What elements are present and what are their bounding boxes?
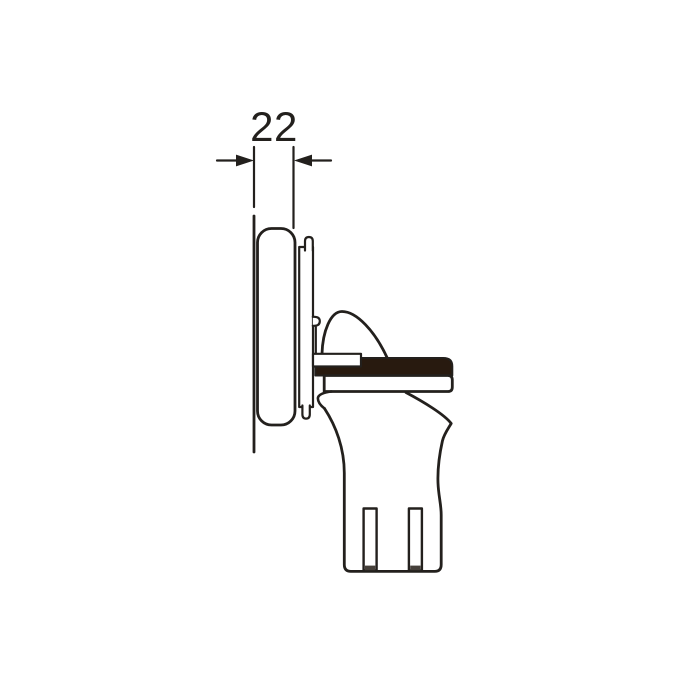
diagram-canvas: 22	[0, 0, 700, 700]
backplate-bottom-tab	[302, 406, 309, 419]
holder-hook-curl	[318, 392, 332, 409]
slot-right	[409, 509, 422, 571]
latch-bump	[313, 317, 320, 326]
dimension-arrowhead-right	[294, 155, 312, 167]
slot-right-shadow	[410, 566, 420, 571]
mount-plate-profile	[258, 229, 296, 426]
dimension-arrowhead-left	[236, 155, 254, 167]
holder-arm-lower-bar	[324, 376, 452, 392]
holder-dome	[322, 312, 388, 359]
technical-diagram: 22	[0, 0, 700, 700]
slot-left-shadow	[365, 566, 375, 571]
backplate-profile	[299, 247, 313, 407]
diagram-artwork: 22	[217, 103, 452, 571]
slot-left	[364, 509, 377, 571]
holder-body	[325, 393, 452, 572]
holder-top-plate	[313, 354, 361, 367]
backplate-top-tab	[305, 237, 313, 251]
dimension-value: 22	[250, 103, 298, 150]
